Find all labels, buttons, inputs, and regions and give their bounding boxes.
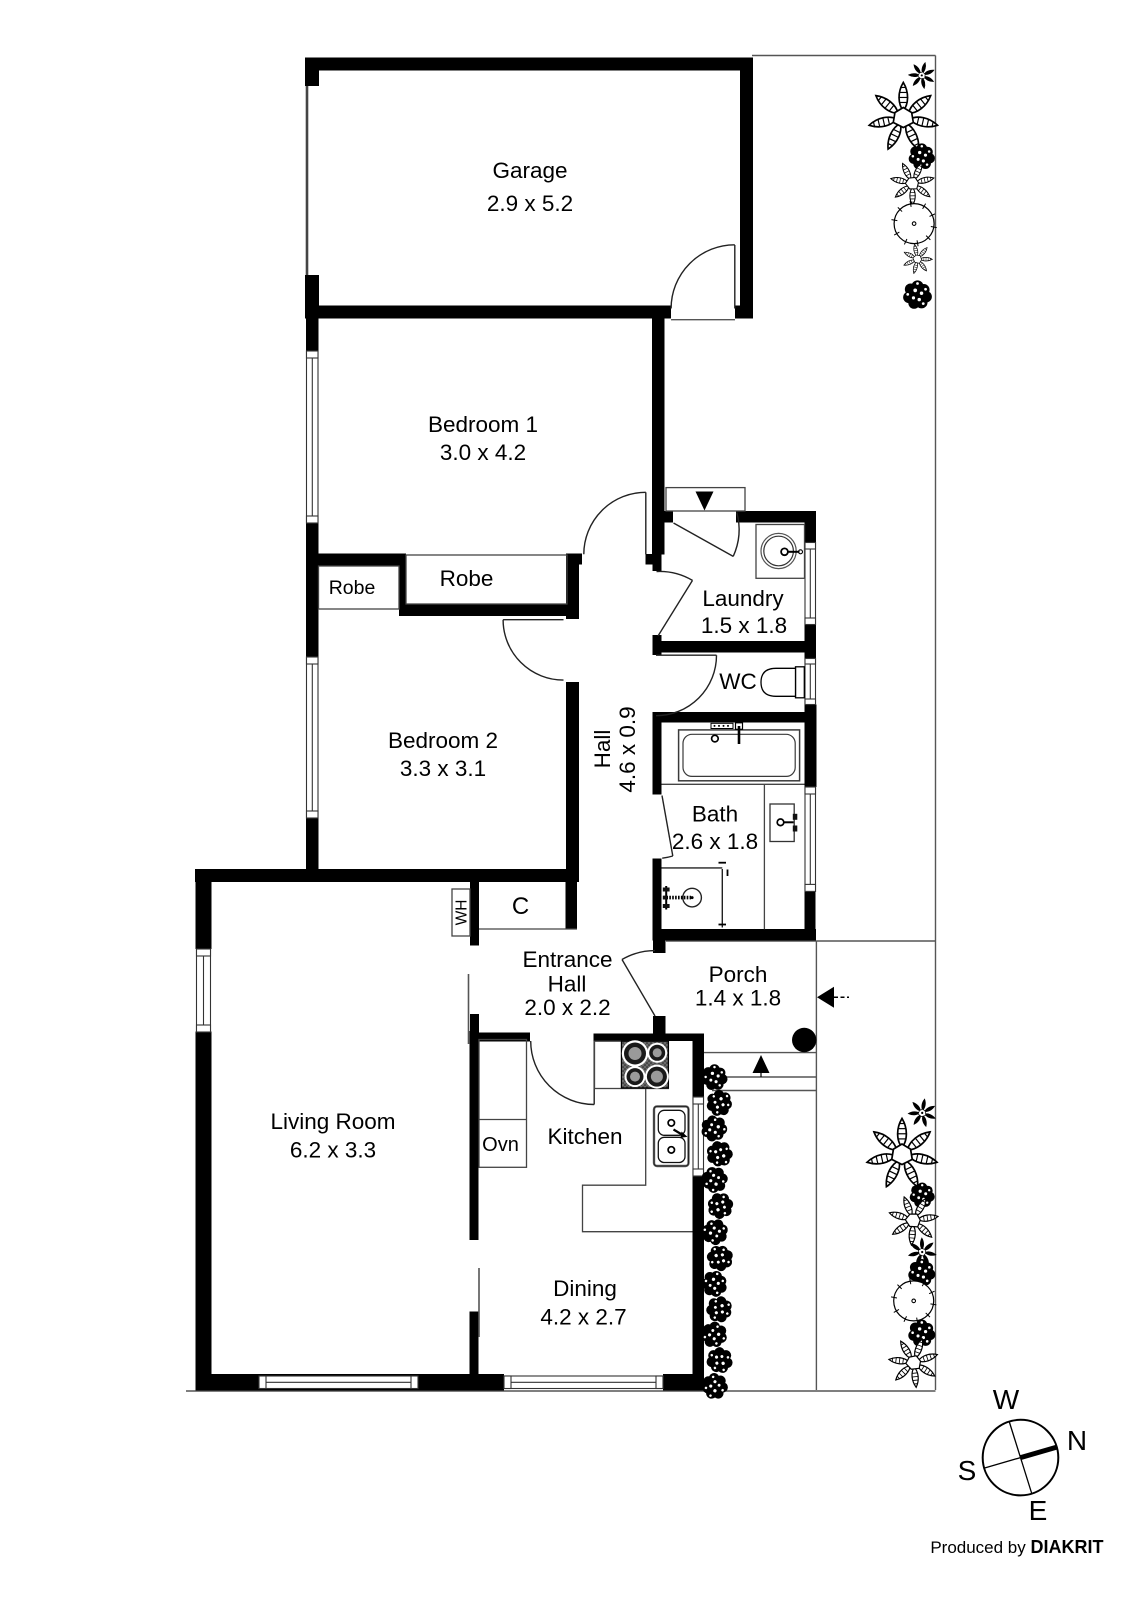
- svg-text:2.9 x 5.2: 2.9 x 5.2: [487, 191, 573, 216]
- svg-text:Bedroom 1: Bedroom 1: [428, 412, 538, 437]
- svg-text:Produced by DIAKRIT: Produced by DIAKRIT: [930, 1537, 1103, 1557]
- svg-text:Bedroom 2: Bedroom 2: [388, 728, 498, 753]
- svg-text:Kitchen: Kitchen: [547, 1124, 622, 1149]
- svg-text:C: C: [512, 893, 529, 920]
- svg-text:3.3 x 3.1: 3.3 x 3.1: [400, 756, 486, 781]
- svg-text:W: W: [993, 1384, 1020, 1415]
- svg-text:Porch: Porch: [709, 962, 768, 987]
- svg-text:Robe: Robe: [440, 566, 494, 591]
- svg-text:Entrance: Entrance: [522, 947, 612, 972]
- svg-text:WH: WH: [454, 900, 471, 926]
- svg-text:WC: WC: [719, 669, 757, 694]
- svg-text:Dining: Dining: [553, 1276, 617, 1301]
- svg-text:4.6 x 0.9: 4.6 x 0.9: [615, 706, 640, 792]
- svg-text:Hall: Hall: [548, 972, 587, 997]
- svg-text:Hall: Hall: [590, 730, 615, 769]
- svg-text:Robe: Robe: [329, 577, 376, 599]
- svg-text:Living Room: Living Room: [270, 1109, 395, 1134]
- svg-text:Ovn: Ovn: [482, 1134, 519, 1156]
- svg-text:2.0 x 2.2: 2.0 x 2.2: [524, 995, 610, 1020]
- svg-text:2.6 x 1.8: 2.6 x 1.8: [672, 829, 758, 854]
- svg-text:Laundry: Laundry: [702, 586, 784, 611]
- svg-text:3.0 x 4.2: 3.0 x 4.2: [440, 440, 526, 465]
- svg-text:Garage: Garage: [492, 158, 567, 183]
- svg-text:Bath: Bath: [692, 802, 738, 827]
- svg-text:1.5 x 1.8: 1.5 x 1.8: [701, 613, 787, 638]
- svg-text:1.4 x 1.8: 1.4 x 1.8: [695, 986, 781, 1011]
- svg-text:6.2 x 3.3: 6.2 x 3.3: [290, 1138, 376, 1163]
- svg-text:S: S: [958, 1455, 977, 1486]
- svg-text:N: N: [1067, 1425, 1087, 1456]
- svg-text:4.2 x 2.7: 4.2 x 2.7: [540, 1305, 626, 1330]
- svg-text:E: E: [1029, 1495, 1048, 1526]
